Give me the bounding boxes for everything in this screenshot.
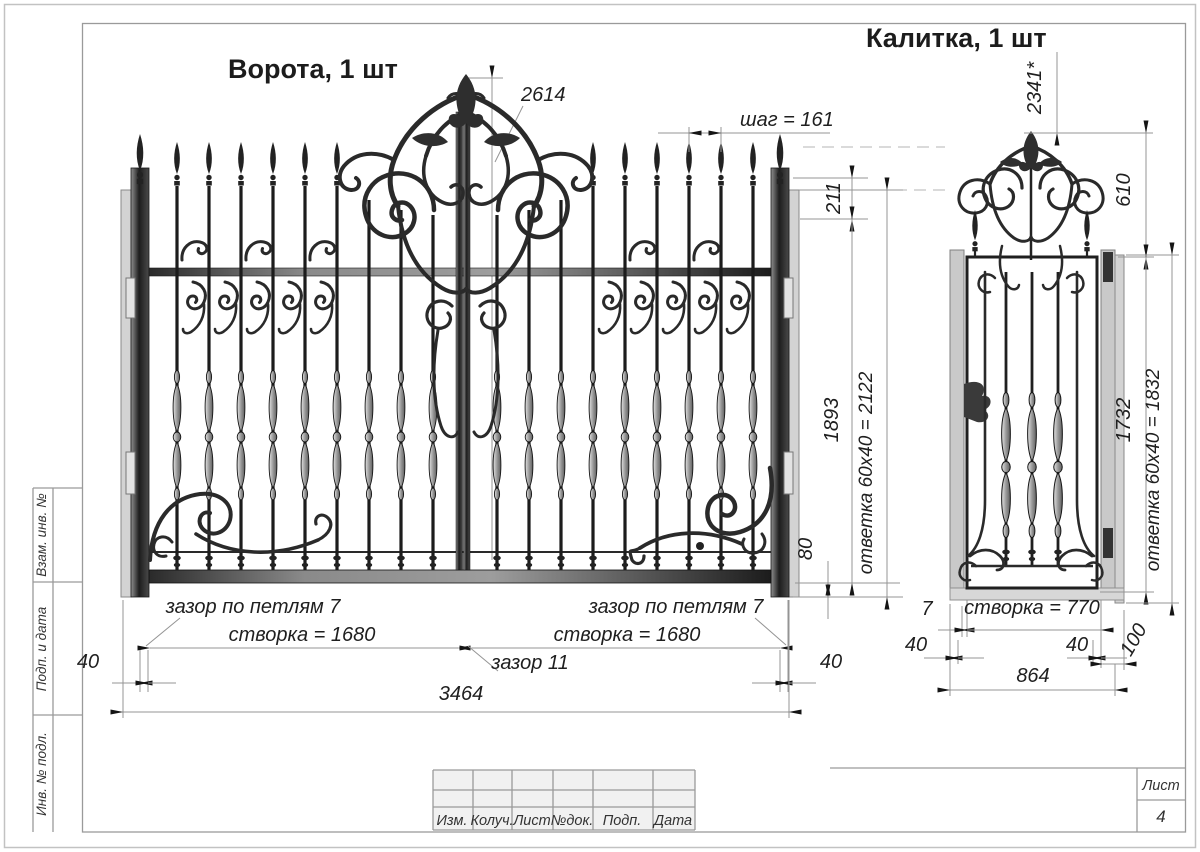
gate-top-offset-dim: 211: [823, 182, 845, 215]
titleblock-col-dok: №док.: [551, 813, 594, 829]
wicket-edge-offset-left: 40: [905, 634, 927, 656]
gate-drawing: [121, 74, 799, 597]
gate-hinge-gap-right: зазор по петлям 7: [588, 596, 765, 618]
wicket-edge-offset-right: 40: [1066, 634, 1088, 656]
margin-label-podp: Подп. и дата: [34, 606, 49, 691]
wicket-hinge-gap-dim: 7: [921, 598, 933, 620]
wicket-handle: [964, 382, 991, 422]
gate-leaf-height-dim: 1893: [821, 398, 843, 443]
gate-bottom-rail-dim: 80: [795, 538, 817, 560]
wicket-balusters: [1002, 393, 1063, 562]
titleblock-col-podp: Подп.: [603, 813, 642, 829]
titleblock-col-izm: Изм.: [437, 813, 468, 829]
gate-edge-offset-right: 40: [820, 651, 842, 673]
wicket-total-height-dim: 2341*: [1024, 61, 1046, 115]
blueprint-svg: Взам. инв. № Подп. и дата Инв. № подл. В…: [0, 0, 1200, 852]
margin-label-inv: Инв. № подл.: [34, 732, 49, 816]
gate-total-width-dim: 3464: [439, 683, 484, 705]
gate-title: Ворота, 1 шт: [228, 54, 398, 84]
wicket-leaf-width-dim: створка = 770: [964, 597, 1100, 619]
margin-column: Взам. инв. № Подп. и дата Инв. № подл.: [33, 488, 82, 832]
wicket-strike-plate-dim: ответка 60х40 = 1832: [1143, 368, 1164, 571]
titleblock-col-data: Дата: [652, 813, 692, 829]
wicket-crown-height-dim: 610: [1113, 173, 1135, 206]
gate-leaf-width-left: створка = 1680: [229, 624, 376, 646]
gate-hinge-gap-left: зазор по петлям 7: [165, 596, 342, 618]
wicket-title: Калитка, 1 шт: [866, 23, 1047, 53]
title-block: Изм. Колуч. Лист №док. Подп. Дата: [433, 770, 695, 830]
wicket-drawing: [950, 131, 1124, 603]
titleblock-col-list: Лист: [512, 813, 550, 829]
sheet-frame: [5, 5, 1196, 848]
drawing-sheet: Взам. инв. № Подп. и дата Инв. № подл. В…: [0, 0, 1200, 852]
titleblock-col-koluch: Колуч.: [470, 813, 513, 829]
margin-label-vzam: Взам. инв. №: [34, 493, 49, 577]
wicket-total-width-dim: 864: [1016, 665, 1049, 687]
gate-strike-plate-dim: ответка 60х40 = 2122: [856, 371, 877, 574]
gate-edge-offset-left: 40: [77, 651, 99, 673]
gate-center-height-dim: 2614: [520, 84, 566, 106]
sheet-number-block: Лист 4: [830, 768, 1186, 832]
wicket-strike-offset-dim: 100: [1116, 620, 1152, 660]
wicket-leaf-height-dim: 1732: [1113, 398, 1135, 443]
sheet-number: 4: [1156, 807, 1165, 826]
gate-leaf-width-right: створка = 1680: [554, 624, 701, 646]
sheet-label: Лист: [1141, 778, 1179, 794]
gate-center-gap-dim: зазор 11: [490, 652, 568, 674]
gate-picket-step-dim: шаг = 161: [740, 109, 834, 131]
